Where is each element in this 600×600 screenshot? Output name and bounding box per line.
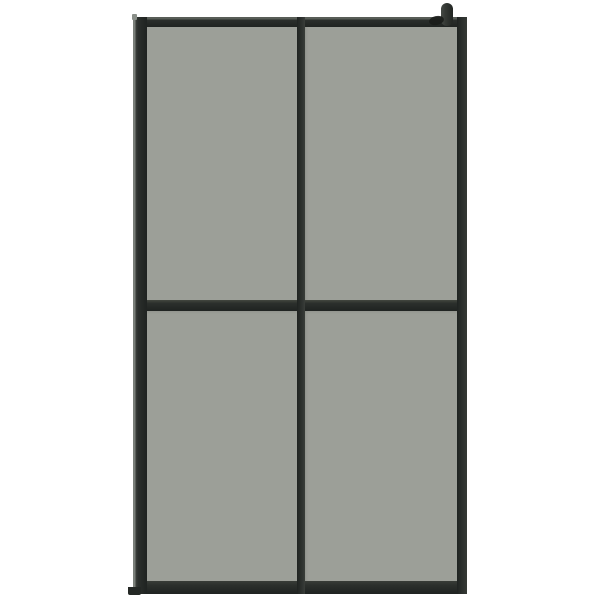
shower-screen-assembly <box>133 17 467 594</box>
frame-right-stile <box>457 17 467 594</box>
frame-left-stile <box>133 17 147 594</box>
frame-left-stile-top-nub <box>132 14 137 20</box>
glass-pane-bottom-left <box>133 307 303 594</box>
frame-center-mullion <box>297 17 305 594</box>
frame-bottom-left-foot <box>128 587 141 595</box>
glass-pane-top-right <box>303 17 467 307</box>
product-photo-canvas <box>0 0 600 600</box>
glass-pane-top-left <box>133 17 303 307</box>
glass-pane-bottom-right <box>303 307 467 594</box>
wall-bracket-knob <box>441 3 453 26</box>
